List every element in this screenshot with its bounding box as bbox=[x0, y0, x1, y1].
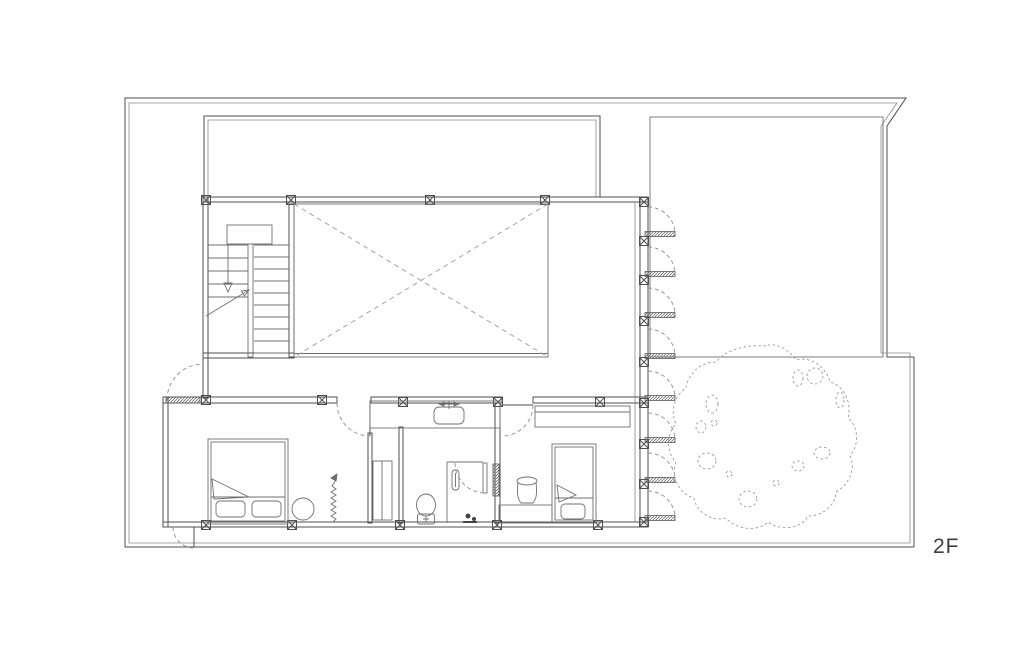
bedroom2-door-swing bbox=[502, 405, 533, 436]
floor-plan-canvas: 2F bbox=[0, 0, 1024, 651]
tree bbox=[669, 345, 857, 529]
site-boundary bbox=[125, 98, 914, 547]
tree-canopy bbox=[669, 345, 857, 529]
wall-west-upper bbox=[203, 197, 208, 398]
void-opening bbox=[294, 204, 548, 357]
closet-counter bbox=[535, 406, 630, 427]
stair-stringer bbox=[248, 244, 253, 357]
desk-stool bbox=[517, 477, 537, 503]
wall-bedroom1-east bbox=[368, 433, 372, 523]
desk bbox=[499, 505, 552, 523]
wall-stair-east bbox=[289, 204, 294, 357]
roof-terrace bbox=[204, 116, 600, 197]
roof-terrace-outer bbox=[204, 116, 600, 197]
stair-treads-right bbox=[254, 245, 289, 353]
site-boundary-outer bbox=[125, 98, 914, 547]
terrace-door-leaf bbox=[166, 397, 200, 403]
faucet bbox=[439, 401, 459, 409]
swing-doors bbox=[166, 364, 533, 548]
wardrobe bbox=[373, 461, 392, 520]
sink-basin bbox=[434, 407, 464, 424]
stair-break-line bbox=[206, 290, 249, 316]
shower-head bbox=[452, 470, 459, 490]
void-cross-mark bbox=[294, 204, 548, 357]
wall-band-west bbox=[163, 397, 168, 527]
shower-door-swing bbox=[455, 463, 485, 493]
pocket-door-panel bbox=[493, 464, 499, 496]
bedroom-main bbox=[208, 439, 392, 524]
pillow bbox=[216, 501, 245, 517]
pillow bbox=[561, 504, 585, 519]
tree-foliage-clusters bbox=[696, 368, 844, 507]
vanity-counter bbox=[370, 401, 500, 428]
floor-label: 2F bbox=[933, 535, 960, 558]
deck-boards bbox=[650, 117, 883, 357]
floor-plan-page: 2F bbox=[0, 0, 1024, 651]
bathroom bbox=[417, 462, 488, 524]
louver-door-leaves bbox=[645, 232, 675, 521]
floor-drain bbox=[463, 514, 477, 523]
bedroom1-door-swing bbox=[337, 403, 370, 436]
round-stool bbox=[292, 498, 314, 520]
plant bbox=[331, 474, 337, 522]
double-bed bbox=[208, 439, 288, 524]
washroom bbox=[370, 401, 500, 428]
blanket-fold bbox=[212, 479, 249, 499]
shower-door-leaf bbox=[483, 463, 487, 493]
terrace-door-swing bbox=[167, 364, 203, 400]
stair-direction-loop bbox=[227, 225, 272, 244]
louver-doors bbox=[645, 207, 675, 521]
louver-door-swings bbox=[648, 207, 675, 518]
roof-terrace-inner bbox=[208, 120, 596, 197]
toilet bbox=[417, 494, 436, 524]
single-bed bbox=[552, 444, 596, 523]
structural-columns bbox=[202, 196, 649, 530]
pillow bbox=[252, 501, 281, 517]
wall-band-top-b bbox=[371, 397, 502, 403]
site-boundary-inner bbox=[129, 103, 910, 543]
garden bbox=[669, 345, 857, 529]
structural-walls bbox=[163, 197, 648, 527]
wood-deck bbox=[650, 117, 883, 357]
staircase bbox=[206, 225, 289, 357]
blanket-fold bbox=[557, 485, 576, 502]
bedroom-second bbox=[499, 406, 630, 523]
wall-band-top-c bbox=[533, 397, 648, 403]
yard-door-swing bbox=[173, 527, 194, 548]
wall-washroom-west bbox=[399, 427, 403, 523]
